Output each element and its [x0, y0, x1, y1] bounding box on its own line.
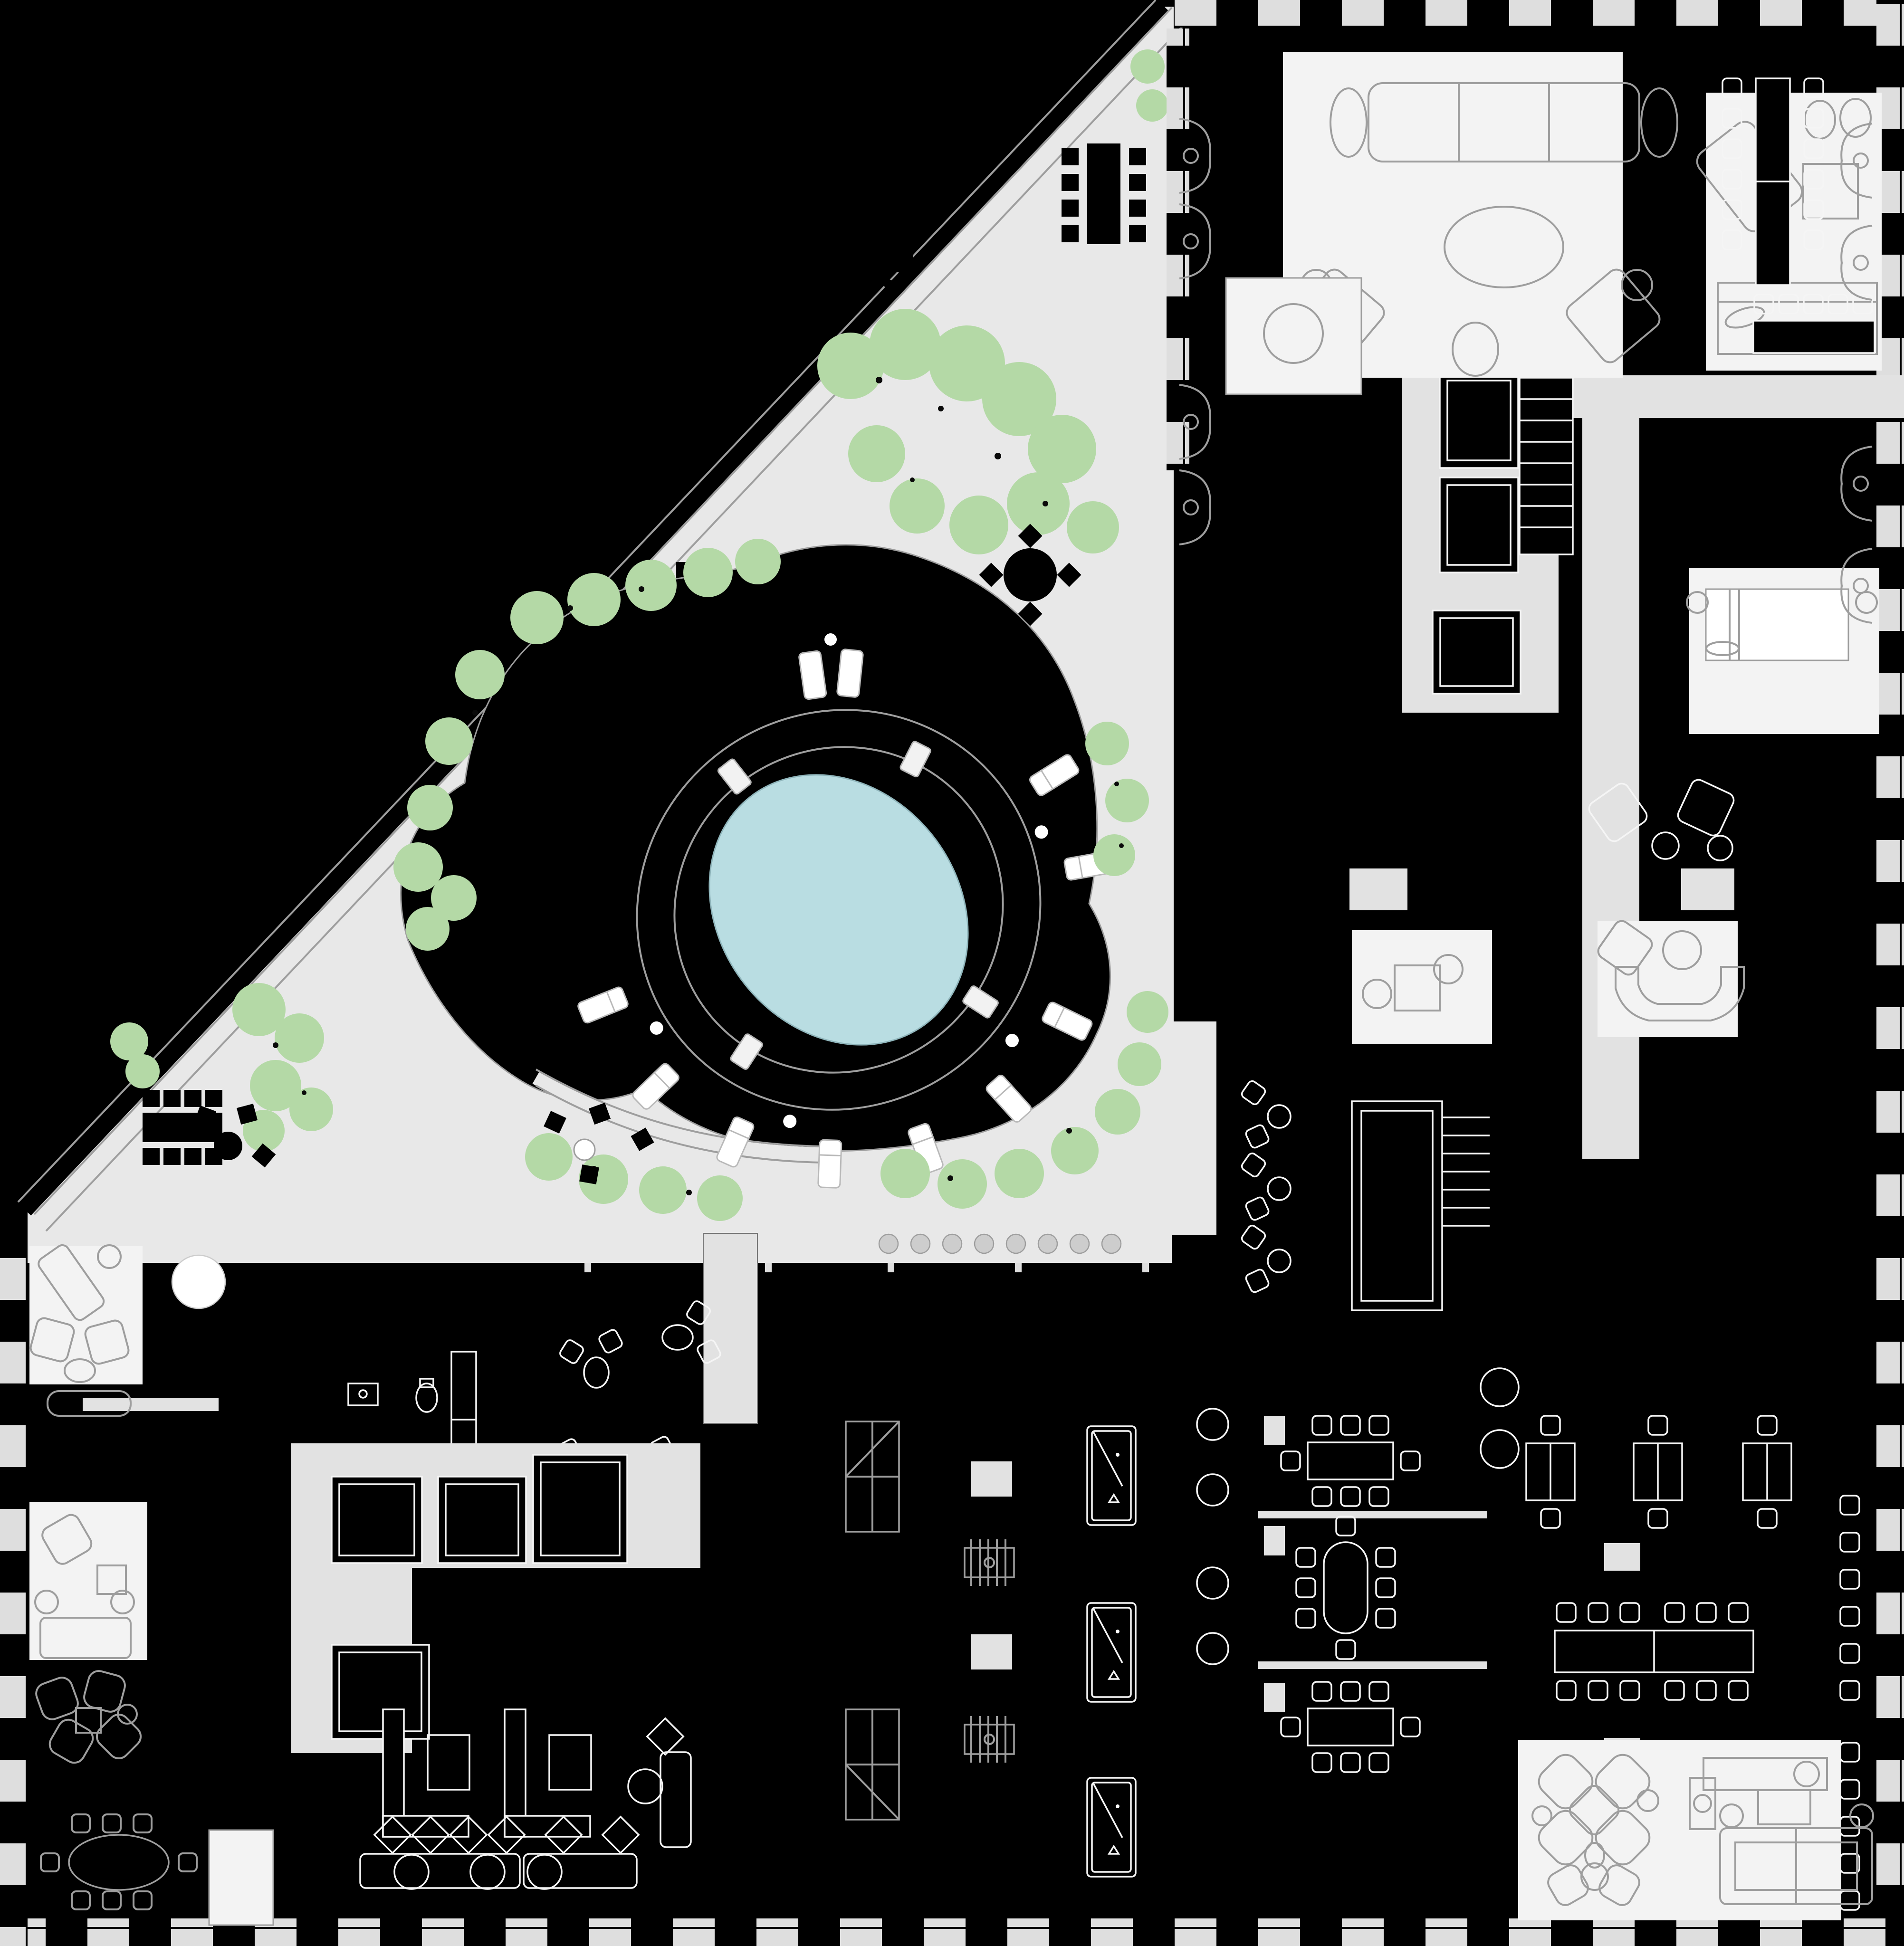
facade-bottom	[28, 1918, 1904, 1946]
facade-left	[0, 1216, 28, 1946]
west-room-b	[29, 1502, 147, 1660]
tv-lounge	[1518, 1740, 1873, 1920]
reception-counter	[83, 1398, 219, 1411]
billiard-table	[1087, 1426, 1136, 1525]
window-box	[1598, 868, 1624, 909]
window-box	[1349, 868, 1407, 910]
seat-cube	[1604, 1543, 1640, 1571]
facade-terrace-side	[1167, 29, 1189, 470]
tv-board	[1264, 1526, 1285, 1555]
round-table	[172, 1255, 225, 1308]
elevator-core-a	[1433, 373, 1521, 694]
facade-top	[1174, 0, 1904, 28]
window-box	[1681, 868, 1734, 910]
floor-plan-drawing	[0, 0, 1904, 1946]
bedroom	[1687, 568, 1879, 734]
stair-core-a	[1520, 378, 1573, 554]
lounger-icon	[837, 649, 863, 697]
table-tennis-table	[846, 1709, 899, 1820]
lounger-icon	[818, 1140, 842, 1188]
tv-board	[1264, 1416, 1285, 1445]
billiard-table	[1087, 1603, 1136, 1702]
entry-vestibule	[703, 1233, 757, 1423]
floor-plan-page	[0, 0, 1904, 1946]
seat-cube	[971, 1634, 1012, 1669]
sauna-room	[1226, 278, 1361, 394]
billiard-table	[1087, 1778, 1136, 1877]
lounge-room	[1595, 918, 1744, 1037]
seat-cube	[971, 1461, 1012, 1497]
corridor	[1559, 375, 1904, 418]
office-room	[1352, 930, 1492, 1044]
tv-board	[1264, 1683, 1285, 1712]
table-tennis-table	[846, 1421, 899, 1532]
side-table	[209, 1830, 273, 1925]
